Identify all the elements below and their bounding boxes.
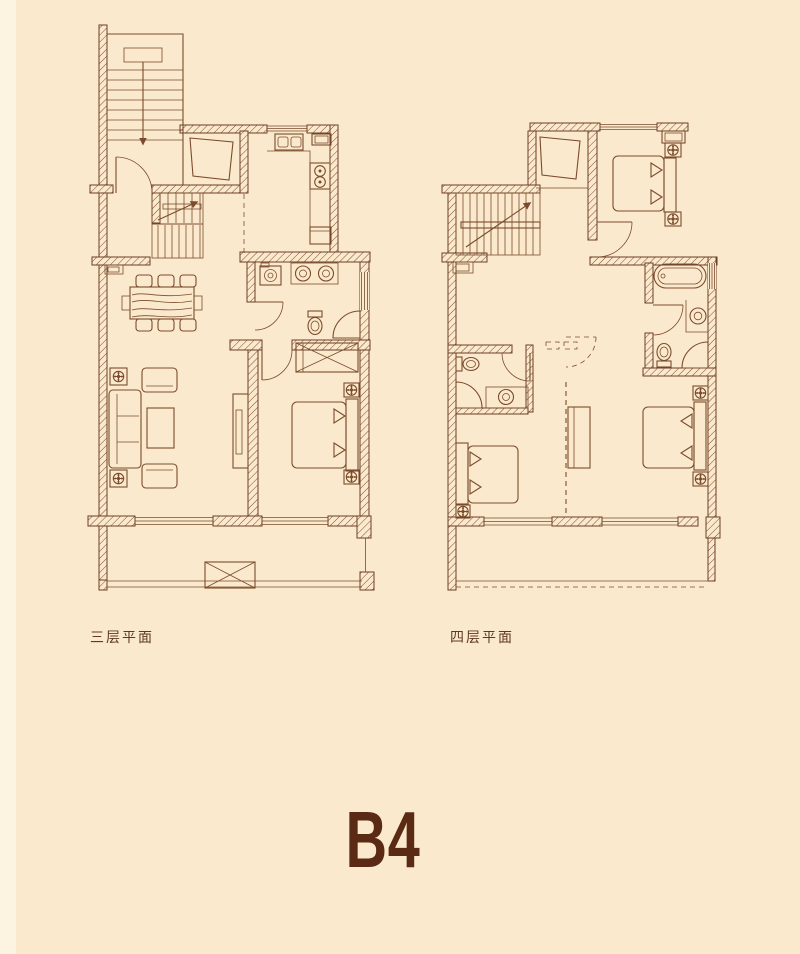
equipment-platform-symbol: [205, 562, 255, 588]
sofa-symbol: [109, 390, 141, 468]
armchair-symbol: [142, 368, 177, 392]
fourth-floor-label: 四层平面: [450, 627, 514, 647]
nightstand-symbol: [693, 386, 708, 400]
plant-symbol: [110, 368, 127, 385]
bed-symbol: [292, 399, 358, 471]
vanity-symbol: [686, 300, 708, 332]
bedroom-symbols: [292, 343, 359, 484]
second-bathroom-symbols: [456, 357, 528, 408]
fridge-symbol: [312, 134, 331, 145]
terrace-edge: [456, 581, 708, 587]
bathtub-symbol: [654, 264, 706, 288]
nightstand-symbol: [456, 505, 470, 518]
dining-symbols: [105, 265, 202, 331]
toilet-symbol: [657, 344, 671, 368]
cabinet-symbol: [568, 407, 590, 468]
bedroom-right-symbols: [643, 386, 708, 486]
bed-symbol: [613, 156, 676, 212]
coffee-table-symbol: [147, 408, 174, 448]
nightstand-symbol-2: [665, 212, 681, 226]
partition-and-cabinet: [566, 382, 590, 513]
floor-plan-third: [88, 25, 374, 590]
third-floor-label: 三层平面: [90, 627, 154, 647]
exterior-stairs-symbol: [107, 34, 183, 185]
master-bedroom-symbols: [613, 131, 685, 226]
interior-stairs-symbol: [152, 193, 244, 258]
living-room-symbols: [109, 368, 248, 488]
stove-symbol: [310, 163, 330, 189]
plant-symbol-2: [110, 470, 127, 487]
base-cabinet-symbol: [310, 227, 331, 244]
bed-symbol: [468, 446, 518, 503]
armchair-symbol-2: [142, 464, 177, 488]
counter-edge: [267, 151, 310, 230]
floor-plan-fourth: [442, 123, 720, 590]
toilet-symbol: [308, 311, 322, 335]
storage-room-symbol: [183, 133, 233, 185]
nightstand-symbol-2: [693, 472, 708, 486]
wardrobe-box-symbol: [662, 131, 685, 143]
toilet-symbol: [456, 357, 479, 371]
unit-label: B4: [311, 794, 455, 886]
storage-room-symbol: [536, 137, 588, 188]
bed-symbol: [643, 402, 706, 470]
bathroom-symbols: [260, 263, 360, 338]
sink-symbol: [275, 134, 303, 150]
nightstand-symbol: [665, 143, 681, 157]
nightstand-symbol-2: [344, 470, 359, 484]
nightstand-symbol: [344, 383, 359, 397]
shower-symbol: [682, 342, 708, 368]
washing-machine-symbol: [260, 263, 281, 285]
kitchen-symbols: [267, 134, 331, 244]
double-vanity-symbol: [291, 263, 338, 284]
dining-table-symbol: [122, 287, 202, 319]
vanity-symbol: [486, 387, 528, 408]
tv-cabinet-symbol: [233, 394, 248, 468]
shower-symbol: [456, 382, 482, 408]
shower-symbol: [333, 311, 360, 338]
headboard: [456, 443, 468, 504]
interior-stairs-symbol: [456, 193, 540, 255]
bedroom-left-symbols: [456, 443, 518, 518]
